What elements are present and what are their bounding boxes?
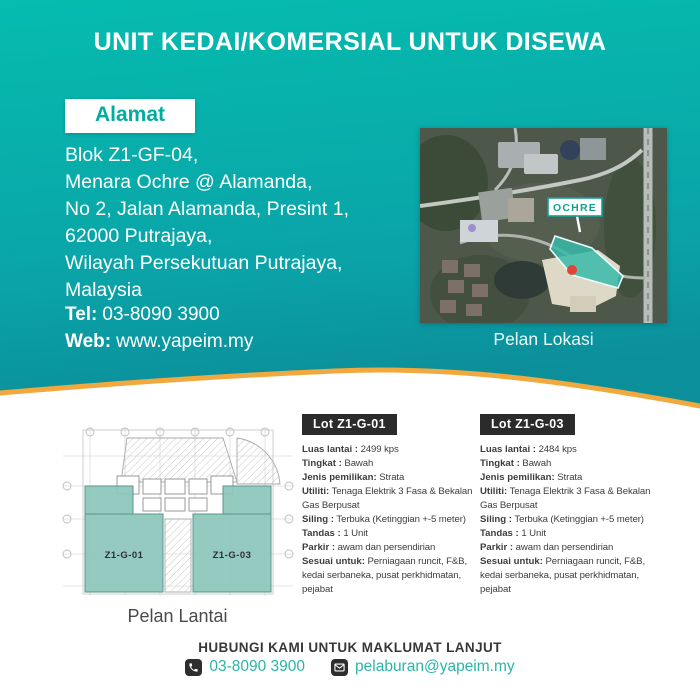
- flyer-poster: UNIT KEDAI/KOMERSIAL UNTUK DISEWA Alamat…: [0, 0, 700, 700]
- floor-plan-caption: Pelan Lantai: [55, 606, 300, 627]
- lot-field: Tingkat : Bawah: [302, 457, 476, 471]
- lot-field: Utiliti: Tenaga Elektrik 3 Fasa & Bekala…: [302, 485, 476, 513]
- lot-fields: Luas lantai : 2484 kps Tingkat : Bawah J…: [480, 443, 658, 597]
- footer-phone-number[interactable]: 03-8090 3900: [209, 658, 305, 676]
- lot-fields: Luas lantai : 2499 kps Tingkat : Bawah J…: [302, 443, 476, 597]
- lot-field: Siling : Terbuka (Ketinggian +-5 meter): [302, 513, 476, 527]
- address-block: Blok Z1-GF-04, Menara Ochre @ Alamanda, …: [65, 142, 349, 304]
- hero-contact-block: Tel:03-8090 3900 Web:www.yapeim.my: [65, 301, 253, 355]
- lot-field: Parkir : awam dan persendirian: [480, 541, 658, 555]
- phone-icon: [185, 659, 202, 676]
- tel-label: Tel:: [65, 304, 97, 325]
- web-row: Web:www.yapeim.my: [65, 328, 253, 355]
- lot-field: Sesuai untuk: Perniagaan runcit, F&B, ke…: [302, 555, 476, 597]
- address-line: 62000 Putrajaya,: [65, 223, 349, 250]
- footer-contact-row: 03-8090 3900 pelaburan@yapeim.my: [0, 658, 700, 676]
- footer-email-address[interactable]: pelaburan@yapeim.my: [355, 658, 515, 676]
- email-icon: [331, 659, 348, 676]
- map-red-pin: [567, 265, 577, 275]
- address-line: Wilayah Persekutuan Putrajaya,: [65, 250, 349, 277]
- floor-plan-image: Z1-G-01 Z1-G-03: [55, 424, 300, 604]
- lot-field: Parkir : awam dan persendirian: [302, 541, 476, 555]
- location-map-image: OCHRE: [420, 128, 667, 323]
- lot-field: Luas lantai : 2484 kps: [480, 443, 658, 457]
- lot-field: Tingkat : Bawah: [480, 457, 658, 471]
- plan-unit1-label: Z1-G-01: [105, 550, 144, 561]
- address-line: No 2, Jalan Alamanda, Presint 1,: [65, 196, 349, 223]
- tel-number[interactable]: 03-8090 3900: [102, 304, 219, 325]
- map-caption: Pelan Lokasi: [420, 329, 667, 350]
- footer-email[interactable]: pelaburan@yapeim.my: [331, 658, 515, 676]
- web-label: Web:: [65, 331, 111, 352]
- map-poi-dot: [468, 224, 476, 232]
- footer-phone[interactable]: 03-8090 3900: [185, 658, 305, 676]
- plan-unit2-label: Z1-G-03: [213, 550, 252, 561]
- website-link[interactable]: www.yapeim.my: [116, 331, 253, 352]
- lot-field: Tandas : 1 Unit: [302, 527, 476, 541]
- lot-field: Jenis pemilikan: Strata: [480, 471, 658, 485]
- address-section-tag: Alamat: [65, 99, 195, 133]
- svg-text:OCHRE: OCHRE: [553, 202, 597, 214]
- lot-field: Siling : Terbuka (Ketinggian +-5 meter): [480, 513, 658, 527]
- lot-field: Jenis pemilikan: Strata: [302, 471, 476, 485]
- lot-field: Luas lantai : 2499 kps: [302, 443, 476, 457]
- lot-name-tag: Lot Z1-G-03: [480, 414, 575, 435]
- lot-field: Sesuai untuk: Perniagaan runcit, F&B, ke…: [480, 555, 658, 597]
- page-title: UNIT KEDAI/KOMERSIAL UNTUK DISEWA: [0, 28, 700, 57]
- tel-row: Tel:03-8090 3900: [65, 301, 253, 328]
- lot-field: Utiliti: Tenaga Elektrik 3 Fasa & Bekala…: [480, 485, 658, 513]
- footer-heading: HUBUNGI KAMI UNTUK MAKLUMAT LANJUT: [0, 640, 700, 655]
- lot-field: Tandas : 1 Unit: [480, 527, 658, 541]
- lot-card-z1-g-01: Lot Z1-G-01 Luas lantai : 2499 kps Tingk…: [302, 414, 476, 597]
- address-line: Malaysia: [65, 277, 349, 304]
- lot-card-z1-g-03: Lot Z1-G-03 Luas lantai : 2484 kps Tingk…: [480, 414, 658, 597]
- address-line: Blok Z1-GF-04,: [65, 142, 349, 169]
- lot-name-tag: Lot Z1-G-01: [302, 414, 397, 435]
- address-line: Menara Ochre @ Alamanda,: [65, 169, 349, 196]
